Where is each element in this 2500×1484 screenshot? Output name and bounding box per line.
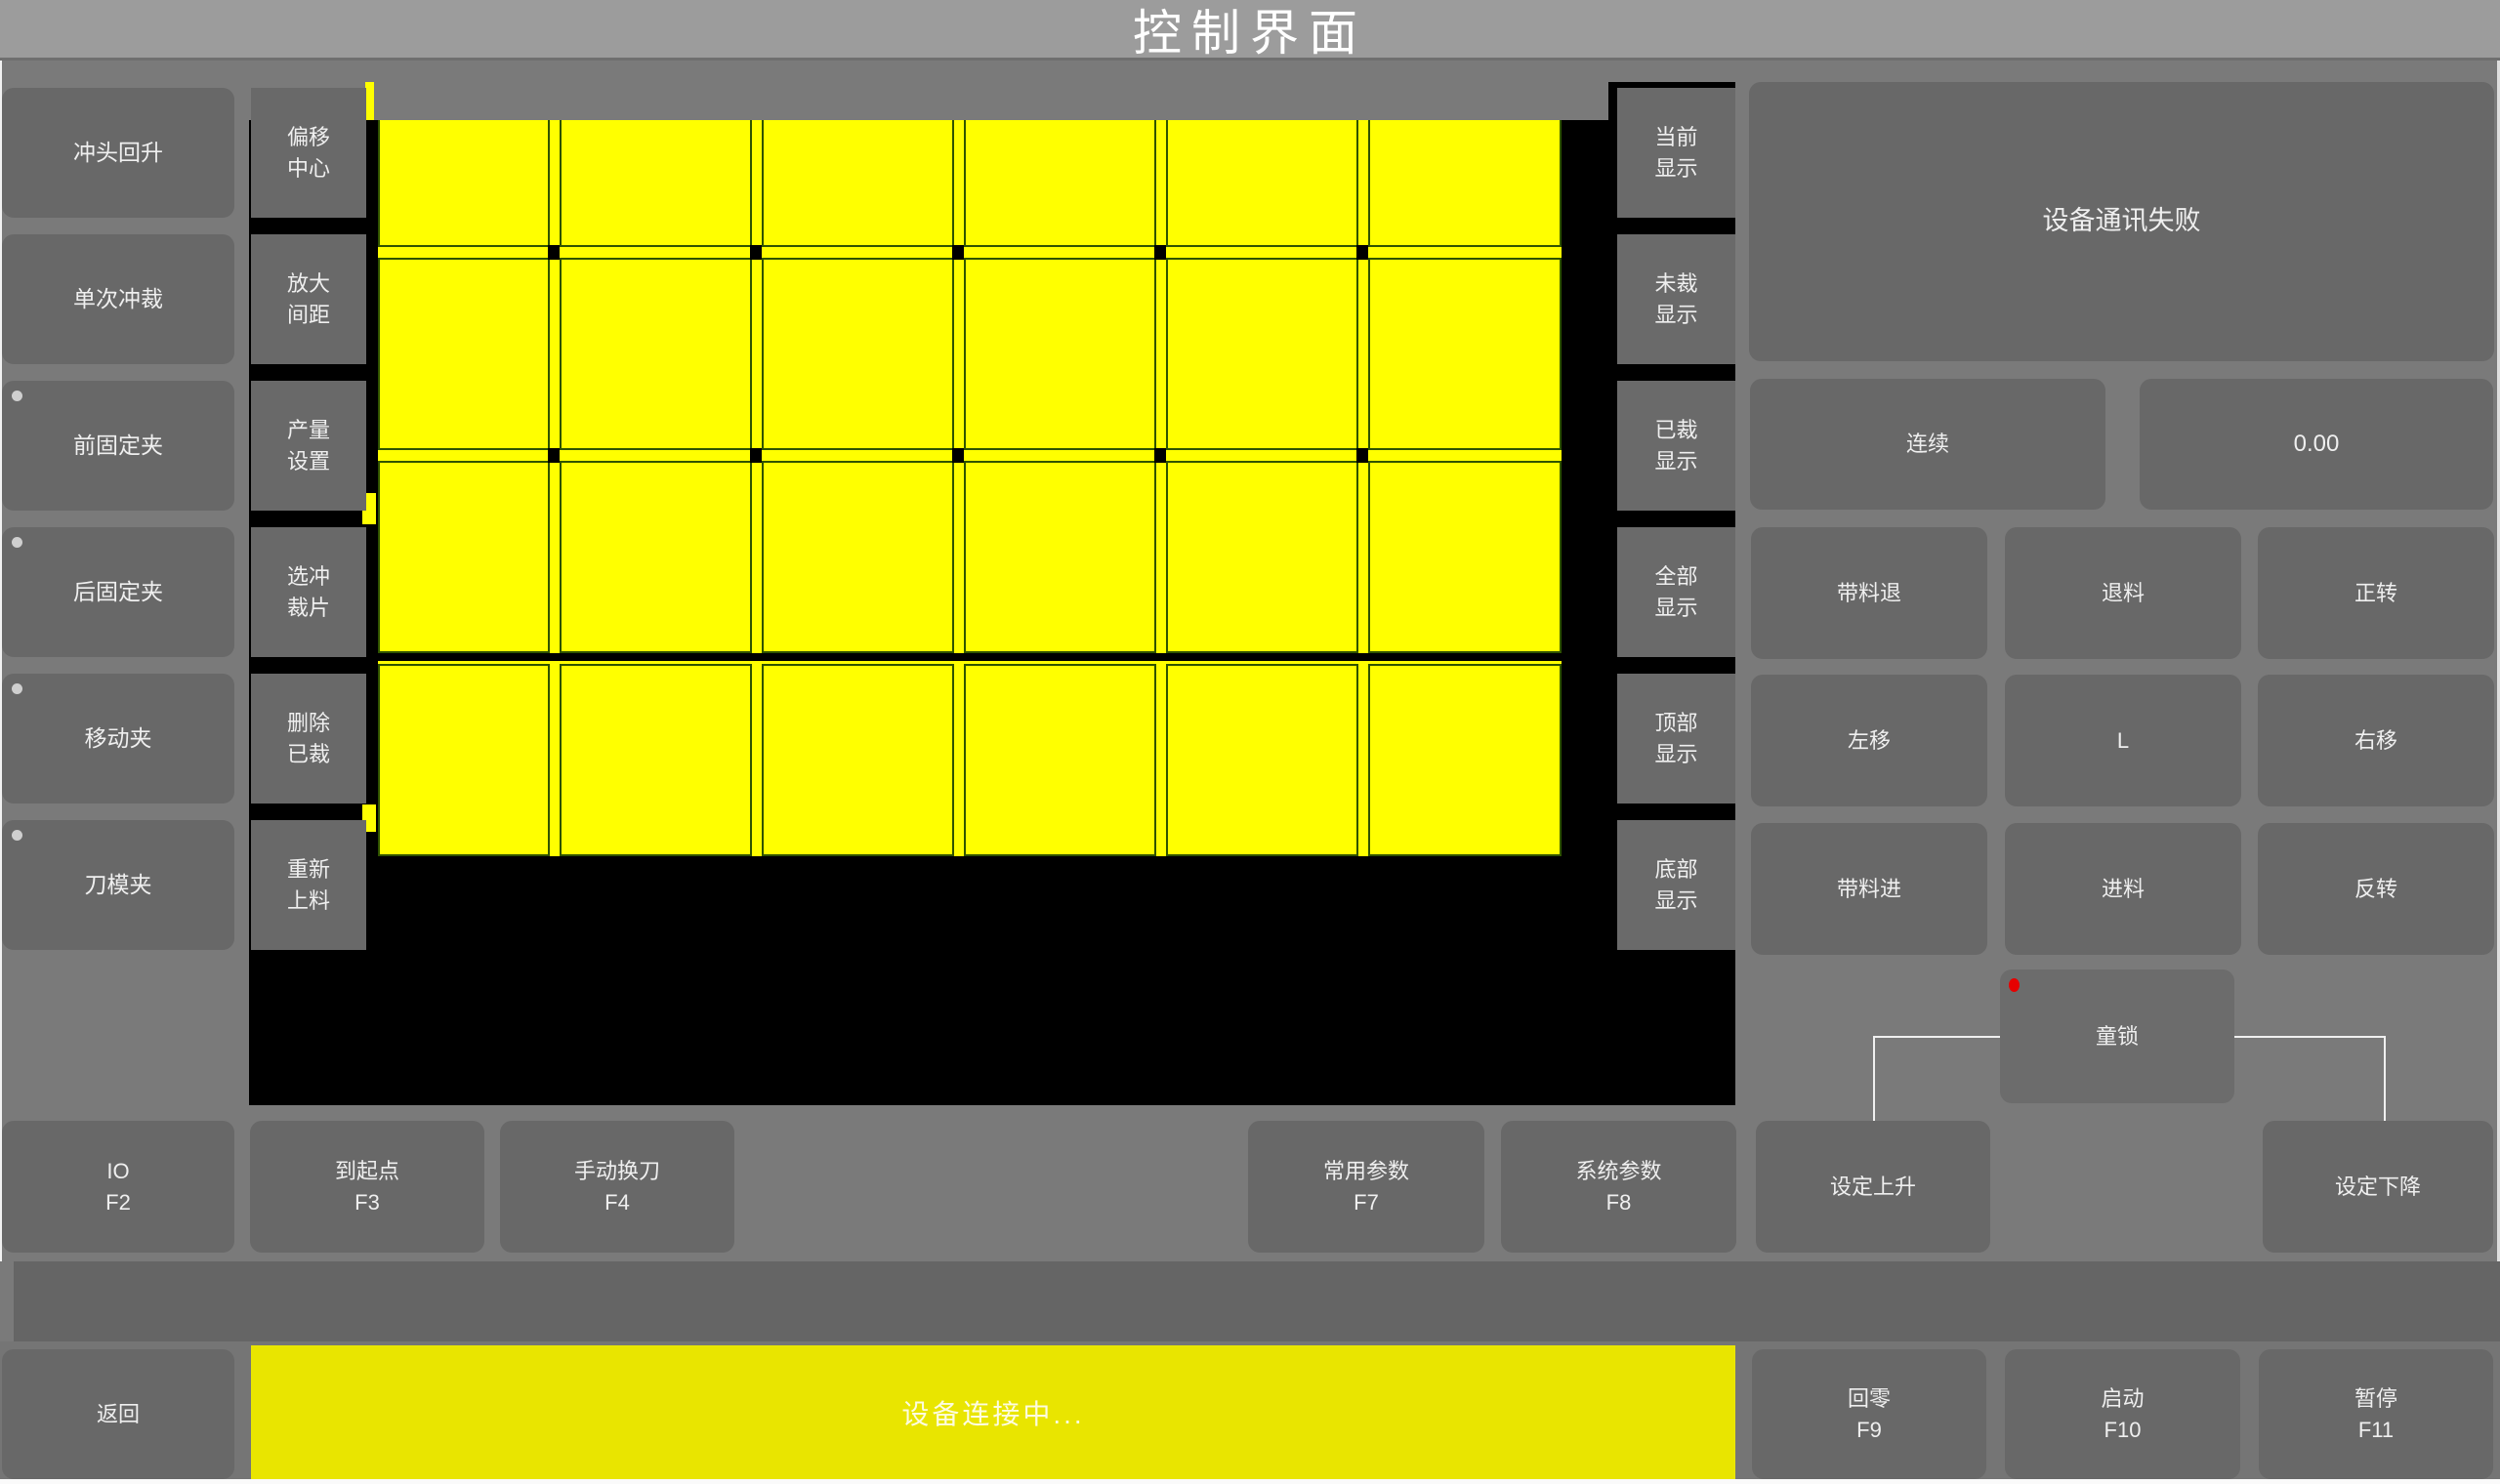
childlock-connector-right-h <box>2234 1036 2386 1038</box>
left-button-single-punch-label: 单次冲裁 <box>73 283 163 315</box>
jog-button-belt-back-label: 带料退 <box>1837 578 1901 609</box>
cut-piece[interactable] <box>1368 120 1562 247</box>
jog-button-move-right[interactable]: 右移 <box>2258 675 2494 806</box>
bottom-key-zero-f9[interactable]: 回零 F9 <box>1752 1349 1986 1479</box>
tool-button-select-piece[interactable]: 选冲 裁片 <box>251 527 366 657</box>
mode-button[interactable]: 连续 <box>1750 379 2105 510</box>
jog-button-feed[interactable]: 进料 <box>2005 823 2241 955</box>
cut-piece[interactable] <box>560 258 752 450</box>
cut-piece[interactable] <box>964 664 1156 856</box>
jog-button-rotate-forward-label: 正转 <box>2354 578 2397 609</box>
left-button-die-clamp[interactable]: 刀模夹 <box>2 820 234 950</box>
comm-status-panel: 设备通讯失败 <box>1749 82 2494 361</box>
tool-button-enlarge-spacing-label: 放大 间距 <box>287 268 330 331</box>
left-button-front-clamp[interactable]: 前固定夹 <box>2 381 234 511</box>
grid-joint-mark <box>1356 448 1368 463</box>
grid-joint-mark <box>952 448 964 463</box>
cut-piece[interactable] <box>1368 461 1562 653</box>
bottom-key-zero-f9-label: 回零 F9 <box>1848 1383 1891 1446</box>
display-button-show-uncut-label: 未裁 显示 <box>1654 268 1697 331</box>
left-button-front-clamp-label: 前固定夹 <box>73 430 163 462</box>
function-button-origin-f3[interactable]: 到起点 F3 <box>250 1121 484 1253</box>
mode-label: 连续 <box>1906 429 1949 460</box>
jog-button-eject[interactable]: 退料 <box>2005 527 2241 659</box>
cut-piece[interactable] <box>1166 120 1358 247</box>
display-button-show-bottom[interactable]: 底部 显示 <box>1617 820 1735 950</box>
tool-button-select-piece-label: 选冲 裁片 <box>287 561 330 624</box>
cut-piece[interactable] <box>762 258 954 450</box>
tool-button-offset-center[interactable]: 偏移 中心 <box>251 88 366 218</box>
cut-piece[interactable] <box>560 461 752 653</box>
bottom-key-pause-f11-label: 暂停 F11 <box>2354 1383 2397 1446</box>
grid-joint-mark <box>548 448 560 463</box>
jog-button-feed-label: 进料 <box>2102 874 2145 905</box>
jog-button-move-right-label: 右移 <box>2354 725 2397 757</box>
grid-joint-mark <box>1154 245 1166 260</box>
grid-joint-mark <box>952 245 964 260</box>
cut-piece[interactable] <box>964 120 1156 247</box>
jog-button-eject-label: 退料 <box>2102 578 2145 609</box>
tool-button-delete-cut[interactable]: 删除 已裁 <box>251 674 366 804</box>
jog-button-move-left[interactable]: 左移 <box>1751 675 1987 806</box>
bottom-key-start-f10-label: 启动 F10 <box>2101 1383 2144 1446</box>
display-button-show-bottom-label: 底部 显示 <box>1654 854 1697 917</box>
display-button-show-all[interactable]: 全部 显示 <box>1617 527 1735 657</box>
left-button-die-clamp-label: 刀模夹 <box>85 869 152 901</box>
jog-button-rotate-reverse-label: 反转 <box>2354 874 2397 905</box>
jog-button-l-key[interactable]: L <box>2005 675 2241 806</box>
function-button-set-rise[interactable]: 设定上升 <box>1756 1121 1990 1253</box>
jog-button-rotate-reverse[interactable]: 反转 <box>2258 823 2494 955</box>
grid-joint-mark <box>1356 245 1368 260</box>
state-indicator-dot-icon <box>12 537 22 548</box>
tool-button-yield-setting-label: 产量 设置 <box>287 415 330 477</box>
grid-sliver <box>365 82 374 120</box>
childlock-connector-left-h <box>1873 1036 2000 1038</box>
grid-joint-mark <box>548 245 560 260</box>
jog-button-belt-forward-label: 带料进 <box>1837 874 1901 905</box>
tool-button-reload-material-label: 重新 上料 <box>287 854 330 917</box>
function-button-manual-toolchange-f4[interactable]: 手动换刀 F4 <box>500 1121 734 1253</box>
function-button-set-rise-label: 设定上升 <box>1830 1172 1916 1203</box>
left-edge-line <box>0 61 2 1261</box>
jog-button-l-key-label: L <box>2117 725 2129 757</box>
control-screen: 控制界面 冲头回升单次冲裁前固定夹后固定夹移动夹刀模夹 偏移 中心放大 间距产量… <box>0 0 2500 1484</box>
alert-dot-icon <box>2009 978 2020 992</box>
display-button-show-current-label: 当前 显示 <box>1654 122 1697 185</box>
display-button-show-uncut[interactable]: 未裁 显示 <box>1617 234 1735 364</box>
cut-piece[interactable] <box>762 664 954 856</box>
jog-button-belt-back[interactable]: 带料退 <box>1751 527 1987 659</box>
grid-joint-mark <box>1154 448 1166 463</box>
grid-joint-mark <box>750 245 762 260</box>
connection-status-bar: 设备连接中... <box>251 1345 1735 1479</box>
display-button-show-top[interactable]: 顶部 显示 <box>1617 674 1735 804</box>
display-button-show-all-label: 全部 显示 <box>1654 561 1697 624</box>
footer-band-dark <box>14 1261 2500 1341</box>
row-separator-line <box>371 653 1562 661</box>
tool-button-yield-setting[interactable]: 产量 设置 <box>251 381 366 511</box>
grid-joint-mark <box>750 448 762 463</box>
function-button-manual-toolchange-f4-label: 手动换刀 F4 <box>574 1156 660 1218</box>
cut-piece[interactable] <box>378 664 550 856</box>
left-button-punch-up-label: 冲头回升 <box>73 137 163 169</box>
cut-piece[interactable] <box>1368 664 1562 856</box>
value-text: 0.00 <box>2294 428 2340 462</box>
function-button-system-params-f8-label: 系统参数 F8 <box>1575 1156 1661 1218</box>
child-lock-button[interactable]: 童锁 <box>2000 969 2234 1103</box>
piece-grid <box>378 120 1562 856</box>
cut-piece[interactable] <box>560 664 752 856</box>
bottom-key-pause-f11[interactable]: 暂停 F11 <box>2259 1349 2493 1479</box>
display-button-show-cut[interactable]: 已裁 显示 <box>1617 381 1735 511</box>
state-indicator-dot-icon <box>12 391 22 401</box>
left-button-rear-clamp-label: 后固定夹 <box>73 576 163 608</box>
left-button-single-punch[interactable]: 单次冲裁 <box>2 234 234 364</box>
bottom-edge-line <box>0 1479 2500 1484</box>
page-title: 控制界面 <box>1133 0 1367 64</box>
cut-piece[interactable] <box>1166 258 1358 450</box>
display-button-show-current[interactable]: 当前 显示 <box>1617 88 1735 218</box>
tool-button-delete-cut-label: 删除 已裁 <box>287 708 330 770</box>
function-button-set-fall[interactable]: 设定下降 <box>2263 1121 2493 1253</box>
left-button-punch-up[interactable]: 冲头回升 <box>2 88 234 218</box>
cut-piece[interactable] <box>1166 461 1358 653</box>
display-button-show-top-label: 顶部 显示 <box>1654 708 1697 770</box>
cut-piece[interactable] <box>1166 664 1358 856</box>
cut-piece[interactable] <box>964 258 1156 450</box>
state-indicator-dot-icon <box>12 683 22 694</box>
back-label: 返回 <box>97 1399 140 1430</box>
left-button-moving-clamp[interactable]: 移动夹 <box>2 674 234 804</box>
comm-status-text: 设备通讯失败 <box>2043 202 2201 240</box>
connection-status-text: 设备连接中... <box>901 1393 1084 1432</box>
state-indicator-dot-icon <box>12 830 22 841</box>
childlock-connector-right-v <box>2384 1036 2386 1122</box>
cut-piece[interactable] <box>378 258 550 450</box>
tool-button-enlarge-spacing[interactable]: 放大 间距 <box>251 234 366 364</box>
display-button-show-cut-label: 已裁 显示 <box>1654 415 1697 477</box>
left-button-moving-clamp-label: 移动夹 <box>85 722 152 755</box>
cut-piece[interactable] <box>964 461 1156 653</box>
jog-button-move-left-label: 左移 <box>1848 725 1891 757</box>
back-button[interactable]: 返回 <box>2 1349 234 1479</box>
value-button[interactable]: 0.00 <box>2140 379 2493 510</box>
function-button-common-params-f7-label: 常用参数 F7 <box>1323 1156 1409 1218</box>
bottom-key-start-f10[interactable]: 启动 F10 <box>2005 1349 2240 1479</box>
cut-piece[interactable] <box>378 461 550 653</box>
cut-piece[interactable] <box>1368 258 1562 450</box>
title-bar: 控制界面 <box>0 0 2500 61</box>
cut-piece[interactable] <box>378 120 550 247</box>
function-button-io-f2[interactable]: IO F2 <box>2 1121 234 1253</box>
cut-piece[interactable] <box>560 120 752 247</box>
function-button-origin-f3-label: 到起点 F3 <box>335 1156 399 1218</box>
left-button-rear-clamp[interactable]: 后固定夹 <box>2 527 234 657</box>
jog-button-rotate-forward[interactable]: 正转 <box>2258 527 2494 659</box>
child-lock-label: 童锁 <box>2096 1021 2139 1052</box>
function-button-common-params-f7[interactable]: 常用参数 F7 <box>1248 1121 1484 1253</box>
childlock-connector-left-v <box>1873 1036 1875 1122</box>
tool-button-reload-material[interactable]: 重新 上料 <box>251 820 366 950</box>
function-button-io-f2-label: IO F2 <box>105 1156 131 1218</box>
cut-piece[interactable] <box>762 461 954 653</box>
jog-button-belt-forward[interactable]: 带料进 <box>1751 823 1987 955</box>
function-button-set-fall-label: 设定下降 <box>2335 1172 2421 1203</box>
cut-piece[interactable] <box>762 120 954 247</box>
function-button-system-params-f8[interactable]: 系统参数 F8 <box>1501 1121 1736 1253</box>
tool-button-offset-center-label: 偏移 中心 <box>287 122 330 185</box>
